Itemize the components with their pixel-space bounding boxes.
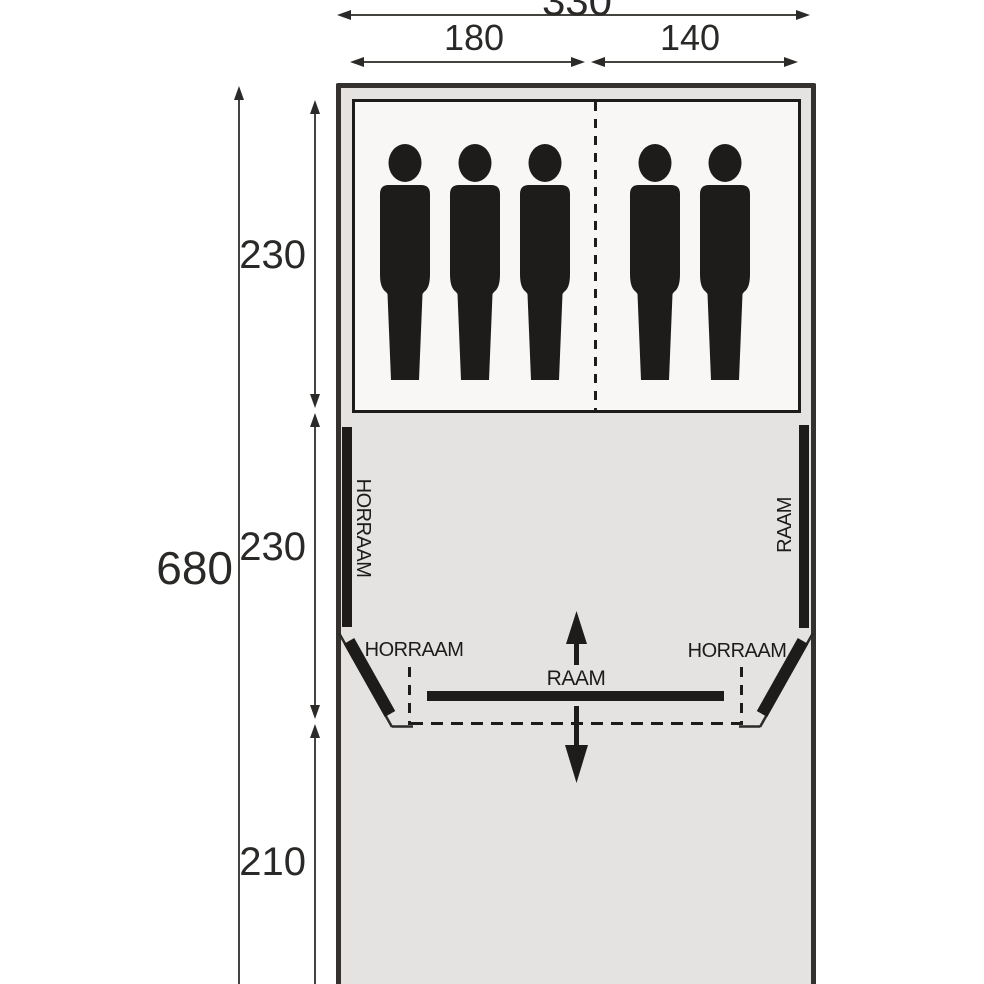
compartment-divider-dashed-line — [594, 102, 597, 410]
arrowhead-icon — [310, 394, 320, 408]
arrowhead-icon — [310, 705, 320, 719]
arrowhead-icon — [310, 724, 320, 738]
entrance-arrow-down-head — [565, 745, 588, 783]
person-icon — [628, 144, 682, 384]
right-side-window-label: RAAM — [775, 445, 795, 605]
dimension-bedroom-right-width: 140 — [645, 17, 735, 59]
dimension-line-bedroom-right-width — [597, 61, 791, 63]
entrance-arrow-up-head — [566, 611, 587, 644]
dimension-line-porch-depth — [314, 735, 316, 984]
left-side-window-label: HORRAAM — [353, 448, 373, 608]
arrowhead-icon — [337, 10, 351, 20]
front-window-label: RAAM — [526, 669, 626, 689]
dimension-line-bedroom-left-width — [357, 61, 579, 63]
person-icon — [378, 144, 432, 384]
arrowhead-icon — [350, 57, 364, 67]
dimension-line-living-depth — [314, 424, 316, 706]
tent-floorplan-canvas: HORRAAM RAAM HORRAAM HORRAAM RAAM 330 18… — [0, 0, 984, 984]
arrowhead-icon — [591, 57, 605, 67]
person-icon — [698, 144, 752, 384]
dimension-bedroom-depth: 230 — [222, 233, 306, 278]
dimension-porch-depth: 210 — [222, 840, 306, 885]
dimension-total-width: 330 — [541, 0, 613, 25]
dimension-total-depth: 680 — [148, 541, 233, 595]
dimension-line-bedroom-depth — [314, 111, 316, 399]
arrowhead-icon — [310, 100, 320, 114]
dimension-bedroom-left-width: 180 — [429, 17, 519, 59]
person-icon — [448, 144, 502, 384]
arrowhead-icon — [310, 413, 320, 427]
right-door-window-label: HORRAAM — [687, 641, 787, 661]
left-door-window-label: HORRAAM — [364, 640, 464, 660]
arrowhead-icon — [796, 10, 810, 20]
dimension-living-depth: 230 — [222, 525, 306, 570]
corner-doors-and-entrance-arrows — [330, 595, 822, 795]
person-icon — [518, 144, 572, 384]
arrowhead-icon — [571, 57, 585, 67]
arrowhead-icon — [234, 86, 244, 100]
arrowhead-icon — [784, 57, 798, 67]
